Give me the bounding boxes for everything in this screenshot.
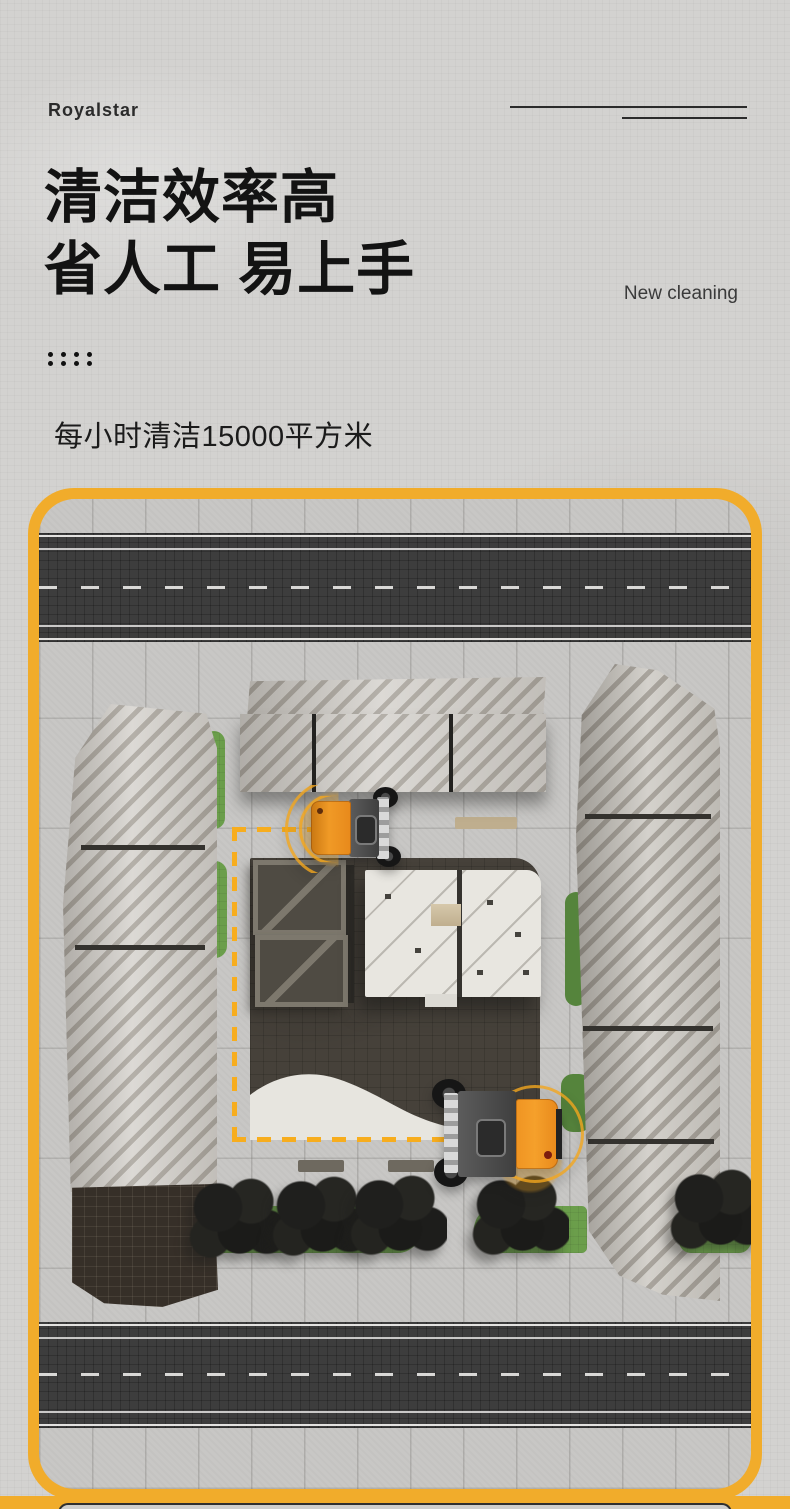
dot <box>74 361 79 366</box>
page-title: 清洁效率高 省人工 易上手 <box>44 162 415 306</box>
robot-side-rack <box>444 1093 458 1173</box>
building-section-seam <box>588 1139 715 1144</box>
dot <box>61 361 66 366</box>
robot-cab <box>516 1099 558 1169</box>
robot-bumper <box>556 1109 562 1159</box>
buildings-top-front-row <box>240 714 546 792</box>
cab-light <box>544 1151 552 1159</box>
route-dash-vertical <box>232 827 237 1141</box>
dot <box>87 361 92 366</box>
buildings-top-back-row <box>247 677 546 719</box>
dot <box>87 352 92 357</box>
scene-illustration <box>39 499 751 1489</box>
page-title-line1: 清洁效率高 <box>44 162 415 234</box>
roof-bolt <box>415 948 421 953</box>
building-section-seam <box>585 814 712 819</box>
next-section-panel <box>58 1503 732 1509</box>
building-left <box>63 704 217 1192</box>
building-gap <box>449 714 453 792</box>
sweeper-robot-2 <box>430 1079 562 1191</box>
dot <box>48 361 53 366</box>
roof-bolt <box>477 970 483 975</box>
decorative-rule-long <box>510 106 747 108</box>
warehouse-building <box>365 870 541 997</box>
dot <box>61 352 66 357</box>
tree <box>670 1167 751 1257</box>
robot-cab <box>311 801 351 855</box>
cab-light <box>317 808 323 814</box>
roof-bolt <box>523 970 529 975</box>
roof-bolt <box>487 900 493 905</box>
metric-text: 每小时清洁15000平方米 <box>54 413 373 455</box>
roof-bolt <box>515 932 521 937</box>
warehouse-hatch <box>431 904 461 926</box>
warehouse-step <box>425 994 457 1007</box>
sweeper-robot-1 <box>305 787 401 869</box>
dot <box>48 352 53 357</box>
roof-bolt <box>385 894 391 899</box>
road-center-line <box>39 586 751 589</box>
building-section-seam <box>583 1026 713 1031</box>
brand-logo: Royalstar <box>48 100 139 121</box>
dot <box>74 352 79 357</box>
tagline-text: New cleaning <box>624 283 738 305</box>
pavement-mark-dark-2 <box>388 1160 434 1172</box>
robot-hatch <box>355 815 377 845</box>
pavement-mark-tan <box>455 817 517 829</box>
building-gap <box>312 714 316 792</box>
road-center-line <box>39 1373 751 1376</box>
warehouse-roof-seam <box>457 870 462 997</box>
dots-icon <box>48 352 92 366</box>
building-section-seam <box>75 945 204 950</box>
page-title-line2: 省人工 易上手 <box>44 234 415 306</box>
promo-page: Royalstar 清洁效率高 省人工 易上手 New cleaning 每小时… <box>0 0 790 1509</box>
scene-frame <box>28 488 762 1500</box>
robot-hatch <box>476 1119 506 1157</box>
storage-crate-2 <box>255 935 348 1007</box>
road-top <box>39 533 751 642</box>
road-bottom <box>39 1322 751 1428</box>
decorative-rule-short <box>622 117 747 119</box>
pavement-mark-dark-1 <box>298 1160 344 1172</box>
building-section-seam <box>81 845 204 850</box>
